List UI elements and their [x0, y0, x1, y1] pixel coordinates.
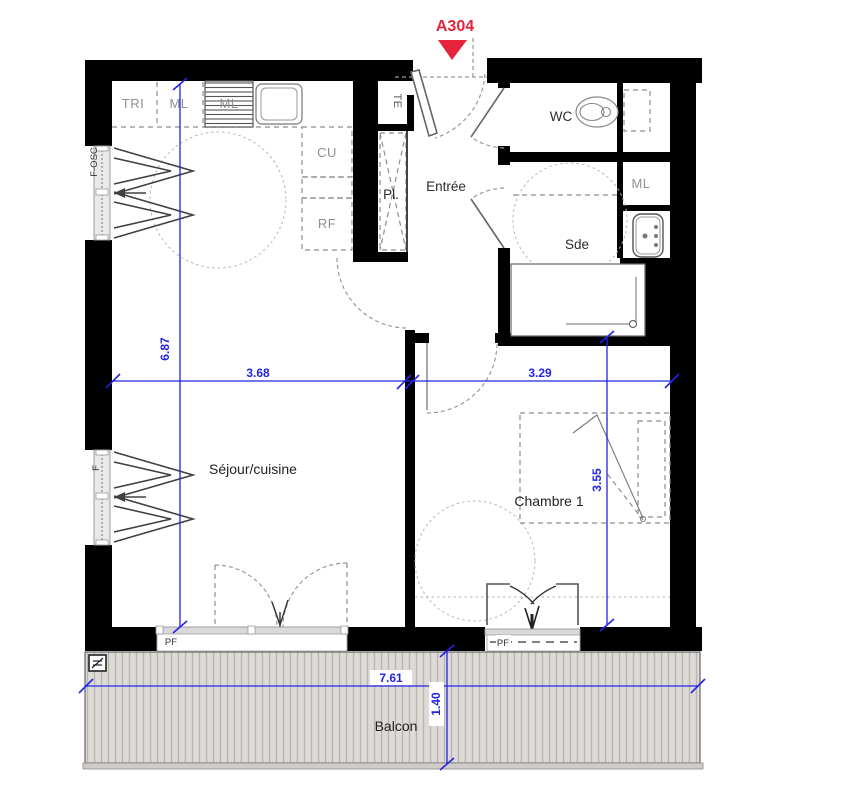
shower-drain	[630, 321, 637, 328]
kitchen-sink	[256, 84, 302, 124]
bedside	[638, 421, 665, 517]
balcon-label: Balcon	[375, 718, 418, 734]
pl-closet: Pl.	[380, 131, 407, 252]
balcony: Balcon	[83, 652, 703, 769]
dim-sejour-height: 6.87	[158, 337, 172, 361]
sde-door	[471, 188, 504, 248]
floor-plan-page: Balcon A304	[0, 0, 841, 800]
cu-label: CU	[317, 145, 337, 160]
unit-marker: A304	[436, 18, 474, 77]
window-pf-chambre: PF	[485, 584, 580, 651]
te-closet: TE	[391, 93, 403, 108]
wc-label: WC	[550, 109, 573, 124]
counter-box	[302, 177, 352, 198]
washbasin	[633, 214, 663, 257]
ml-bath-label: ML	[631, 176, 650, 191]
pl-label: Pl.	[383, 187, 399, 202]
ml2-label: ML	[219, 96, 238, 111]
turning-circle-sde	[513, 163, 627, 277]
toilet	[576, 97, 618, 127]
rf-label: RF	[318, 216, 336, 231]
window-pf-sejour: PF	[156, 563, 348, 651]
entree-label: Entrée	[426, 179, 466, 194]
shower	[511, 264, 645, 336]
sde-label: Sde	[565, 237, 589, 252]
wc-door	[471, 88, 504, 148]
chambre-room: Chambre 1	[415, 413, 670, 621]
duct-box	[624, 90, 650, 131]
chambre-door	[427, 343, 497, 413]
unit-marker-triangle-icon	[438, 40, 467, 60]
dim-chambre-height: 3.55	[590, 468, 604, 492]
sde-room: Sde ML	[511, 163, 663, 336]
f-label: F	[91, 465, 102, 471]
turning-circle-sejour	[150, 132, 286, 268]
window-f: F	[91, 450, 193, 545]
arrow-icon	[114, 492, 125, 502]
pf-chambre-label: PF	[497, 638, 509, 649]
wc-room: WC	[550, 90, 650, 131]
turning-circle-chambre	[415, 501, 535, 621]
te-label: TE	[391, 93, 403, 108]
f-osc-label: F-OSC	[89, 147, 100, 177]
walls	[85, 58, 702, 651]
balcony-deck	[85, 652, 700, 763]
entry-door-leaf	[411, 70, 437, 136]
floor-plan-drawing: Balcon A304	[0, 0, 841, 800]
window-f-osc: F-OSC	[89, 146, 193, 240]
unit-label: A304	[436, 18, 474, 35]
drain-icon	[89, 655, 106, 671]
balcony-edge	[83, 763, 703, 769]
dim-sejour-width: 3.68	[246, 366, 270, 380]
pf-sejour-label: PF	[165, 637, 177, 648]
sejour-opening-arc	[337, 258, 407, 328]
sejour-label: Séjour/cuisine	[209, 461, 297, 477]
tri-label: TRI	[122, 96, 144, 111]
chambre-label: Chambre 1	[514, 493, 583, 509]
dim-balcon-width: 7.61	[379, 671, 403, 685]
dim-chambre-width: 3.29	[528, 366, 552, 380]
kitchen-counter: TRI ML ML CU RF	[112, 81, 352, 268]
ml-label: ML	[169, 96, 188, 111]
dim-balcon-depth: 1.40	[429, 692, 443, 716]
arrow-icon	[114, 188, 125, 198]
